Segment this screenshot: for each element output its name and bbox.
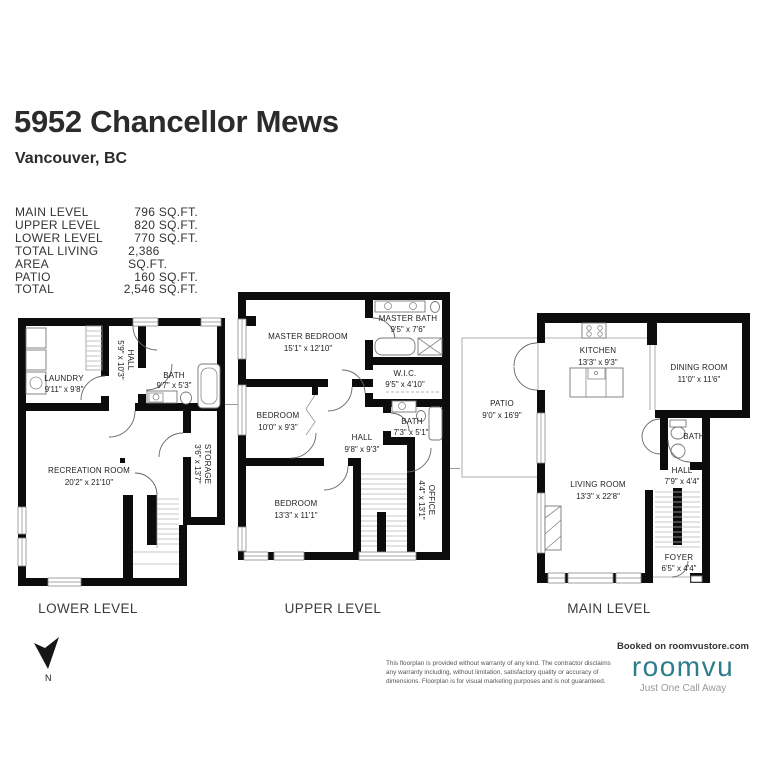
room-dims-label: 7'9" x 4'4": [665, 477, 700, 486]
floorplan-lower-level: LAUNDRY 9'11" x 9'8" HALL 5'9" x 10'3" B…: [14, 312, 230, 592]
area-value: 2,546 SQ.FT.: [124, 283, 198, 296]
room-dims-label: 9'8" x 9'3": [345, 445, 380, 454]
room-name-label: KITCHEN: [580, 346, 617, 355]
room-dims-label: 13'3" x 9'3": [578, 358, 618, 367]
room-dims-label: 13'3" x 22'8": [576, 492, 620, 501]
area-value: 796 SQ.FT.: [134, 206, 198, 219]
area-label: UPPER LEVEL: [15, 219, 100, 232]
room-name-label: DINING ROOM: [670, 363, 727, 372]
floorplan-page: 5952 Chancellor Mews Vancouver, BC MAIN …: [0, 0, 768, 768]
area-table: MAIN LEVEL796 SQ.FT. UPPER LEVEL820 SQ.F…: [15, 206, 198, 296]
level-connector-line: [450, 468, 460, 469]
room-dims-label: 11'0" x 11'6": [678, 375, 721, 384]
room-name-label: BATH: [401, 417, 423, 426]
room-name-label: W.I.C.: [394, 369, 417, 378]
area-label: MAIN LEVEL: [15, 206, 89, 219]
level-label-lower: LOWER LEVEL: [28, 601, 148, 616]
room-dims-label: 9'11" x 9'8": [45, 385, 84, 394]
room-dims-label: 9'7" x 5'3": [157, 381, 192, 390]
room-name-label: HALL: [672, 466, 693, 475]
brand-block: Booked on roomvustore.com roomvu Just On…: [608, 641, 758, 694]
room-name-label: FOYER: [665, 553, 694, 562]
fireplace: [545, 506, 561, 550]
room-name-label: RECREATION ROOM: [48, 466, 130, 475]
room-name-label: LIVING ROOM: [570, 480, 626, 489]
level-label-main: MAIN LEVEL: [549, 601, 669, 616]
room-name-label: STORAGE: [203, 444, 212, 484]
page-title: 5952 Chancellor Mews: [14, 104, 339, 140]
area-row: LOWER LEVEL770 SQ.FT.: [15, 232, 198, 245]
entry-door: [653, 576, 702, 582]
room-name-label: MASTER BATH: [379, 314, 438, 323]
area-value: 770 SQ.FT.: [134, 232, 198, 245]
area-value: 820 SQ.FT.: [134, 219, 198, 232]
area-value: 2,386 SQ.FT.: [128, 245, 198, 271]
room-dims-label: 10'0" x 9'3": [258, 423, 298, 432]
room-dims-label: 13'3" x 11'1": [274, 511, 317, 520]
room-name-label: HALL: [352, 433, 373, 442]
room-name-label: BEDROOM: [257, 411, 300, 420]
floorplan-upper-level: MASTER BEDROOM 15'1" x 12'10" MASTER BAT…: [236, 288, 452, 566]
room-name-label: HALL: [126, 350, 135, 371]
room-name-label: BATH: [683, 432, 705, 441]
room-name-label: PATIO: [490, 399, 514, 408]
room-name-label: OFFICE: [427, 485, 436, 516]
room-dims-label: 6'5" x 4'4": [662, 564, 697, 573]
level-label-upper: UPPER LEVEL: [273, 601, 393, 616]
area-label: LOWER LEVEL: [15, 232, 103, 245]
room-dims-label: 9'0" x 16'9": [482, 411, 522, 420]
level-connector-line: [225, 404, 238, 405]
room-dims-label: 20'2" x 21'10": [65, 478, 113, 487]
area-row: MAIN LEVEL796 SQ.FT.: [15, 206, 198, 219]
floorplan-main-level: PATIO 9'0" x 16'9" KITCHEN 13'3" x 9'3" …: [458, 310, 756, 590]
room-dims-label: 9'5" x 7'6": [391, 325, 426, 334]
disclaimer-text: This floorplan is provided without warra…: [386, 659, 616, 686]
brand-tagline: Just One Call Away: [608, 683, 758, 694]
room-name-label: LAUNDRY: [44, 374, 84, 383]
area-row: TOTAL2,546 SQ.FT.: [15, 283, 198, 296]
area-label: TOTAL LIVING AREA: [15, 245, 128, 271]
room-dims-label: 3'6" x 13'7": [193, 444, 202, 484]
room-dims-label: 5'9" x 10'3": [116, 340, 125, 380]
room-dims-label: 9'5" x 4'10": [385, 380, 425, 389]
room-dims-label: 15'1" x 12'10": [284, 344, 332, 353]
address-subtitle: Vancouver, BC: [15, 150, 127, 168]
area-row: UPPER LEVEL820 SQ.FT.: [15, 219, 198, 232]
brand-logo: roomvu: [608, 652, 758, 683]
room-name-label: BATH: [163, 371, 185, 380]
room-name-label: BEDROOM: [275, 499, 318, 508]
room-dims-label: 4'4" x 13'1": [417, 480, 426, 520]
room-name-label: MASTER BEDROOM: [268, 332, 348, 341]
room-dims-label: 7'3" x 5'1": [394, 428, 429, 437]
compass-n-label: N: [45, 673, 52, 683]
area-label: TOTAL: [15, 283, 54, 296]
walls: [537, 313, 750, 583]
area-row: TOTAL LIVING AREA2,386 SQ.FT.: [15, 245, 198, 271]
north-arrow-icon: N: [34, 637, 70, 685]
